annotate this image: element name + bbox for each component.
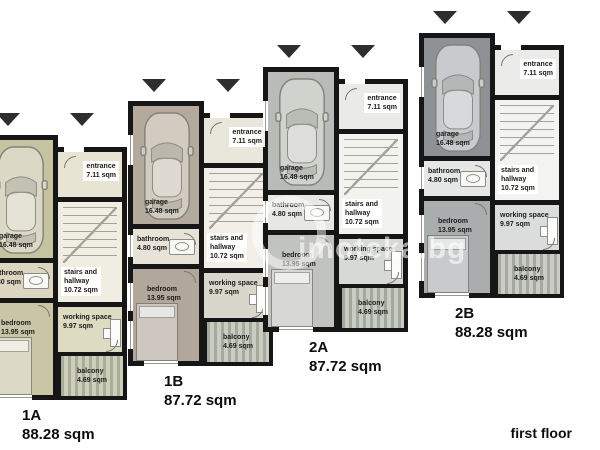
- room-label-working-space: working space 9.97 sqm: [209, 279, 258, 297]
- staircase-icon: [63, 207, 117, 263]
- room-entrance: entrance 7.11 sqm: [334, 79, 408, 134]
- room-bathroom: bathroom 4.80 sqm: [128, 224, 204, 269]
- bed-icon: [136, 303, 178, 361]
- floorplan-canvas: garage 16.48 sqm entrance 7.11 sqm stair…: [0, 0, 600, 450]
- door-arc-icon: [458, 160, 492, 194]
- room-label-bedroom: bedroom 13.95 sqm: [147, 285, 181, 303]
- unit-area: 88.28 sqm: [22, 426, 95, 445]
- room-garage: garage 16.48 sqm: [0, 135, 58, 263]
- unit-1a-plan: garage 16.48 sqm entrance 7.11 sqm stair…: [0, 135, 127, 400]
- front-door-gap: [64, 147, 84, 152]
- front-door-gap: [345, 79, 365, 84]
- unit-id: 2A: [309, 339, 382, 358]
- room-garage: garage 16.48 sqm: [263, 67, 339, 195]
- room-garage: garage 16.48 sqm: [128, 101, 204, 229]
- room-label-stairs-hallway: stairs and hallway 10.72 sqm: [61, 267, 101, 296]
- entrance-arrow-icon: [216, 79, 240, 92]
- window-marker: [128, 235, 133, 257]
- room-entrance: entrance 7.11 sqm: [490, 45, 564, 100]
- entrance-arrow-icon: [70, 113, 94, 126]
- window-marker: [0, 395, 32, 400]
- floor-title: first floor: [511, 425, 572, 441]
- room-label-stairs-hallway: stairs and hallway 10.72 sqm: [207, 233, 247, 262]
- window-marker: [435, 293, 469, 298]
- room-garage: garage 16.48 sqm: [419, 33, 495, 161]
- room-bathroom: bathroom 4.80 sqm: [0, 258, 58, 303]
- unit-2b: garage 16.48 sqm entrance 7.11 sqm stair…: [419, 33, 584, 363]
- room-balcony: balcony 4.69 sqm: [494, 250, 564, 298]
- room-working-space: working space 9.97 sqm: [53, 302, 127, 357]
- entrance-arrow-icon: [142, 79, 166, 92]
- room-label-working-space: working space 9.97 sqm: [63, 313, 112, 331]
- window-marker: [263, 287, 268, 315]
- room-label-bathroom: bathroom 4.80 sqm: [0, 269, 23, 287]
- window-marker: [419, 67, 424, 97]
- room-label-stairs-hallway: stairs and hallway 10.72 sqm: [498, 165, 538, 194]
- entrance-arrow-icon: [0, 113, 20, 126]
- room-balcony: balcony 4.69 sqm: [57, 352, 127, 400]
- unit-id: 1A: [22, 407, 95, 426]
- room-label-garage: garage 16.48 sqm: [0, 232, 33, 250]
- entrance-arrow-icon: [277, 45, 301, 58]
- front-door-gap: [501, 45, 521, 50]
- window-marker: [128, 321, 133, 349]
- entrance-arrow-icon: [351, 45, 375, 58]
- unit-1a: garage 16.48 sqm entrance 7.11 sqm stair…: [0, 135, 147, 450]
- room-label-garage: garage 16.48 sqm: [436, 130, 470, 148]
- window-marker: [419, 167, 424, 189]
- unit-id: 1B: [164, 373, 237, 392]
- room-label-bathroom: bathroom 4.80 sqm: [428, 167, 460, 185]
- unit-area: 88.28 sqm: [455, 324, 528, 343]
- room-bedroom: bedroom 13.95 sqm: [0, 298, 58, 400]
- room-label-balcony: balcony 4.69 sqm: [358, 299, 388, 317]
- room-label-stairs-hallway: stairs and hallway 10.72 sqm: [342, 199, 382, 228]
- watermark: imoteka.bg: [298, 232, 466, 266]
- room-stairs-hallway: stairs and hallway 10.72 sqm: [53, 197, 127, 307]
- room-stairs-hallway: stairs and hallway 10.72 sqm: [334, 129, 408, 239]
- unit-label: 2A 87.72 sqm: [309, 339, 382, 377]
- room-label-working-space: working space 9.97 sqm: [500, 211, 549, 229]
- staircase-icon: [500, 105, 554, 161]
- bed-icon: [271, 269, 313, 327]
- front-door-gap: [210, 113, 230, 118]
- unit-area: 87.72 sqm: [164, 392, 237, 411]
- room-label-entrance: entrance 7.11 sqm: [520, 59, 556, 79]
- room-label-entrance: entrance 7.11 sqm: [229, 127, 265, 147]
- room-entrance: entrance 7.11 sqm: [53, 147, 127, 202]
- room-label-bedroom: bedroom 13.95 sqm: [1, 319, 35, 337]
- window-marker: [128, 283, 133, 311]
- unit-label: 1B 87.72 sqm: [164, 373, 237, 411]
- unit-id: 2B: [455, 305, 528, 324]
- unit-area: 87.72 sqm: [309, 358, 382, 377]
- room-label-entrance: entrance 7.11 sqm: [364, 93, 400, 113]
- room-balcony: balcony 4.69 sqm: [338, 284, 408, 332]
- window-marker: [144, 361, 178, 366]
- room-label-balcony: balcony 4.69 sqm: [514, 265, 544, 283]
- door-arc-icon: [21, 262, 55, 296]
- room-entrance: entrance 7.11 sqm: [199, 113, 273, 168]
- staircase-icon: [344, 139, 398, 195]
- entrance-arrow-icon: [433, 11, 457, 24]
- entrance-arrow-icon: [507, 11, 531, 24]
- room-label-entrance: entrance 7.11 sqm: [83, 161, 119, 181]
- window-marker: [279, 327, 313, 332]
- room-label-garage: garage 16.48 sqm: [145, 198, 179, 216]
- room-stairs-hallway: stairs and hallway 10.72 sqm: [490, 95, 564, 205]
- room-label-balcony: balcony 4.69 sqm: [77, 367, 107, 385]
- bed-icon: [0, 337, 32, 395]
- window-marker: [128, 135, 133, 165]
- room-label-balcony: balcony 4.69 sqm: [223, 333, 253, 351]
- unit-label: 1A 88.28 sqm: [22, 407, 95, 445]
- room-bathroom: bathroom 4.80 sqm: [419, 156, 495, 201]
- unit-label: 2B 88.28 sqm: [455, 305, 528, 343]
- room-bedroom: bedroom 13.95 sqm: [128, 264, 204, 366]
- room-working-space: working space 9.97 sqm: [199, 268, 273, 323]
- room-label-garage: garage 16.48 sqm: [280, 164, 314, 182]
- room-label-bathroom: bathroom 4.80 sqm: [137, 235, 169, 253]
- door-arc-icon: [167, 228, 201, 262]
- room-working-space: working space 9.97 sqm: [490, 200, 564, 255]
